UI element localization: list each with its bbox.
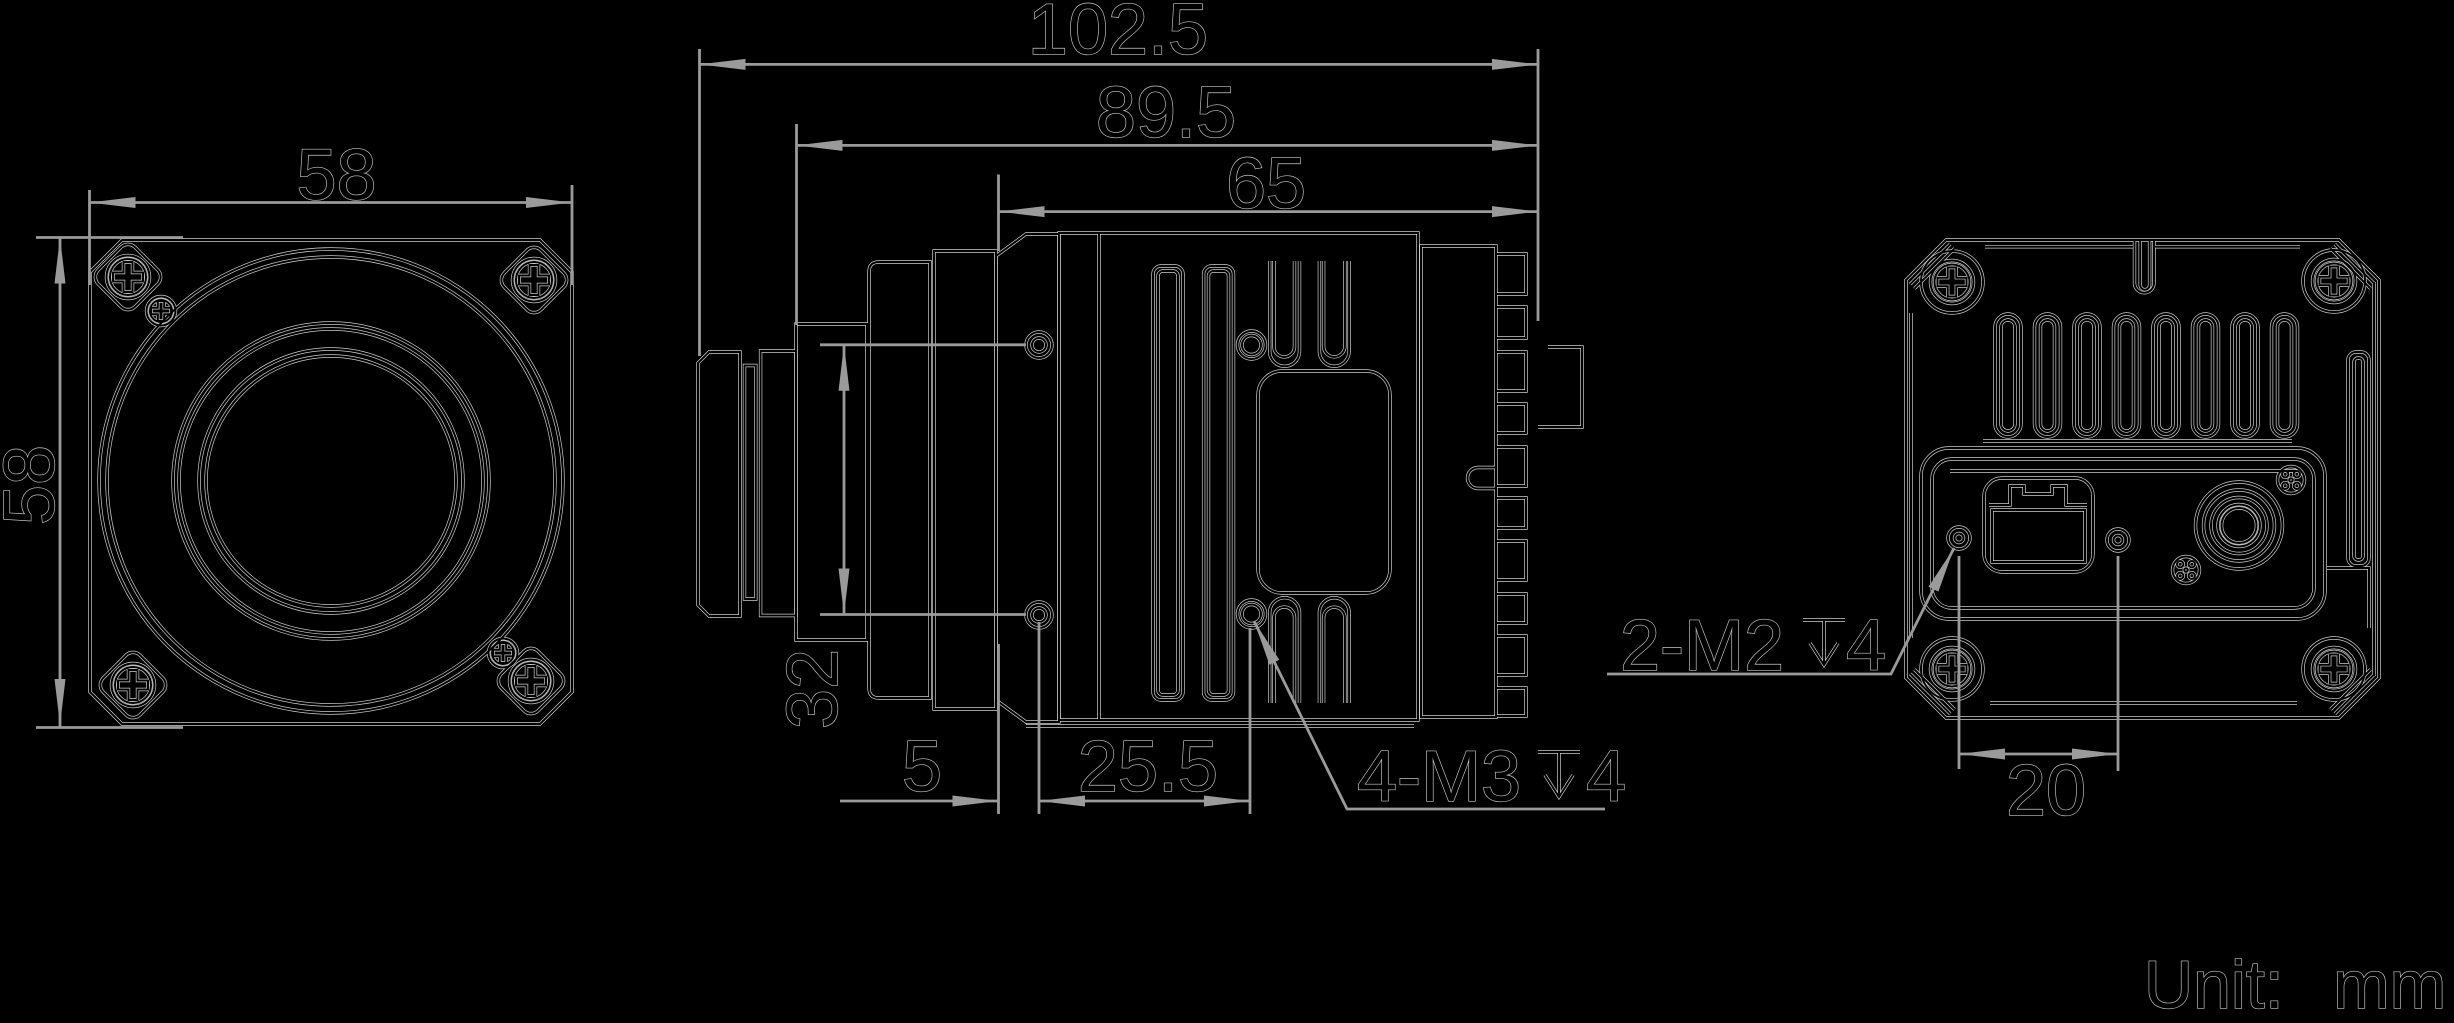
svg-text:4: 4: [1586, 737, 1626, 817]
svg-text:4-M3: 4-M3: [1357, 737, 1521, 817]
svg-text:102.5: 102.5: [1028, 0, 1208, 70]
svg-text:25.5: 25.5: [1078, 727, 1218, 807]
svg-text:20: 20: [2006, 751, 2086, 831]
svg-text:Unit:: Unit:: [2144, 947, 2284, 1023]
svg-text:65: 65: [1226, 144, 1306, 224]
svg-text:32: 32: [773, 649, 853, 729]
svg-text:58: 58: [296, 136, 376, 216]
svg-text:mm: mm: [2333, 947, 2446, 1023]
svg-text:2-M2: 2-M2: [1620, 606, 1784, 686]
svg-text:89.5: 89.5: [1096, 73, 1236, 153]
svg-text:4: 4: [1846, 606, 1886, 686]
svg-text:58: 58: [0, 445, 70, 525]
svg-text:5: 5: [902, 727, 942, 807]
